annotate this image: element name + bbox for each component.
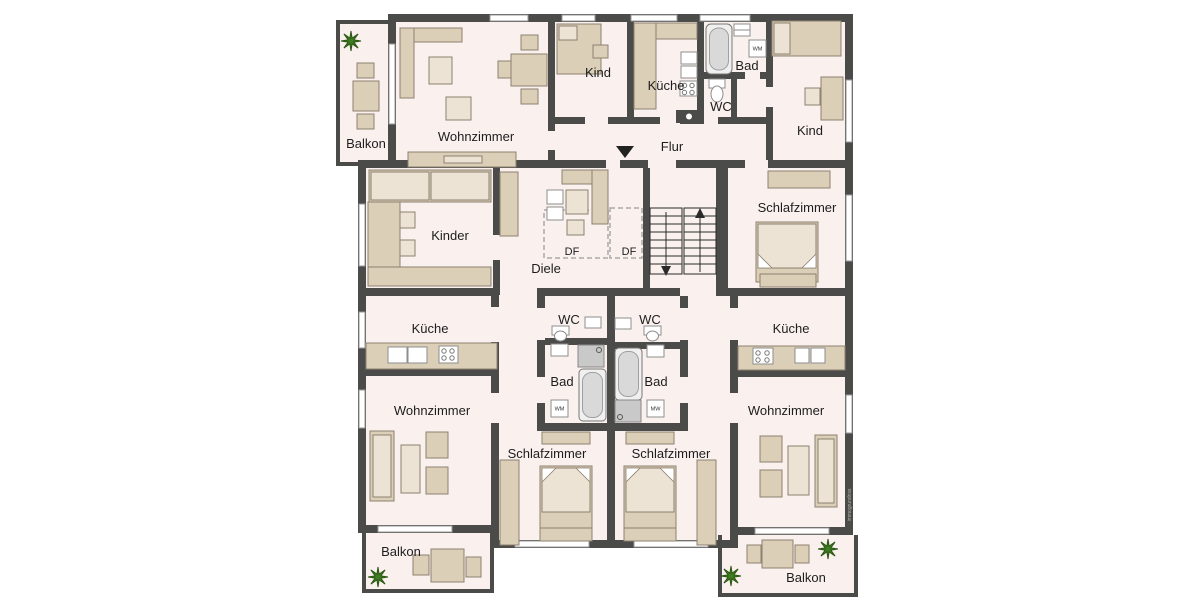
chair: [466, 557, 481, 577]
floors: [338, 16, 854, 593]
chair: [747, 545, 761, 563]
room-label-wohnzimmer-bottom-left: Wohnzimmer: [394, 403, 471, 418]
kitchen-left-set: [366, 343, 497, 369]
window: [846, 195, 852, 261]
sink: [408, 347, 427, 363]
nightstand: [400, 240, 415, 256]
room-label-bad-mid-left: Bad: [550, 374, 573, 389]
floor-plan-page: WM: [0, 0, 1200, 600]
wall: [537, 340, 545, 377]
wall: [731, 79, 737, 124]
wall: [620, 160, 648, 168]
shelf: [542, 432, 590, 444]
wall: [766, 107, 773, 160]
shelf: [626, 432, 674, 444]
wall: [548, 150, 555, 168]
cushion: [429, 57, 452, 84]
table: [431, 549, 464, 582]
plant-icon: [721, 566, 741, 586]
wall: [537, 423, 688, 431]
room-label-flur: Flur: [661, 139, 684, 154]
balcony-wall: [336, 20, 340, 166]
wall: [697, 14, 704, 124]
room-label-kinder: Kinder: [431, 228, 469, 243]
sideboard-detail: [444, 156, 482, 163]
nightstand: [400, 212, 415, 228]
wardrobe: [500, 460, 519, 545]
room-label-balkon-bottom-left: Balkon: [381, 544, 421, 559]
kitchen-right-set: [738, 346, 845, 370]
side-table: [547, 190, 563, 204]
mattress: [758, 224, 816, 268]
wall: [491, 423, 499, 548]
wall: [716, 168, 728, 296]
coffee-table: [446, 97, 471, 120]
bed-bench: [760, 274, 816, 287]
balcony-wall: [490, 533, 494, 593]
bathtub-basin: [619, 352, 639, 397]
sink: [388, 347, 407, 363]
corner-bench: [562, 170, 594, 184]
wall: [718, 117, 773, 124]
wall: [730, 423, 738, 548]
plant-icon: [368, 567, 388, 587]
window: [562, 15, 595, 21]
sofa-cushion: [818, 439, 834, 503]
armchair: [760, 470, 782, 497]
sink: [681, 52, 697, 64]
balcony-wall: [854, 535, 858, 597]
window: [631, 15, 677, 21]
cabinet: [500, 172, 518, 236]
room-label-bad-top: Bad: [735, 58, 758, 73]
coffee-table: [401, 445, 420, 493]
window: [389, 44, 395, 124]
balcony-wall: [362, 589, 494, 593]
bathtub-basin: [710, 28, 729, 70]
wall: [358, 288, 498, 296]
room-label-bad-mid-right: Bad: [644, 374, 667, 389]
window: [755, 528, 829, 534]
balcony-wall: [336, 20, 396, 24]
washing-machine-label: WM: [753, 47, 763, 53]
chair: [805, 88, 820, 105]
wall: [680, 340, 688, 377]
armchair: [760, 436, 782, 462]
room-label-kind-top-right: Kind: [797, 123, 823, 138]
wall: [608, 117, 660, 124]
window: [490, 15, 528, 21]
room-label-kind-top: Kind: [585, 65, 611, 80]
wall: [548, 160, 606, 168]
pillow: [774, 23, 790, 54]
window: [359, 204, 365, 266]
wardrobe: [697, 460, 716, 545]
wall: [730, 340, 738, 393]
toilet-icon: [647, 331, 659, 341]
balcony-wall: [718, 593, 858, 597]
plant-icon: [818, 539, 838, 559]
washbasin: [551, 344, 568, 356]
balcony-wall: [362, 533, 366, 593]
plant-icon: [341, 31, 361, 51]
wall: [537, 288, 680, 296]
washbasin: [615, 318, 631, 329]
pillow: [559, 26, 577, 40]
room-label-schlafzimmer-top-right: Schlafzimmer: [758, 200, 837, 215]
chair: [795, 545, 809, 563]
coffee-table: [788, 446, 809, 495]
room-label-wohnzimmer-bottom-right: Wohnzimmer: [748, 403, 825, 418]
armchair: [426, 467, 448, 494]
side-table: [567, 220, 584, 235]
room-label-kueche-top: Küche: [648, 78, 685, 93]
window: [700, 15, 750, 21]
desk: [821, 77, 843, 120]
room-label-wohnzimmer-top-left: Wohnzimmer: [438, 129, 515, 144]
chair: [521, 89, 538, 104]
mattress: [431, 172, 489, 200]
room-label-schlafzimmer-bottom-left: Schlafzimmer: [508, 446, 587, 461]
wall: [537, 296, 545, 308]
armchair: [426, 432, 448, 458]
room-label-kueche-mid-left: Küche: [412, 321, 449, 336]
stove: [439, 346, 458, 363]
table: [353, 81, 379, 111]
window: [515, 541, 589, 547]
side-table: [547, 207, 563, 220]
wall: [643, 168, 650, 290]
window: [846, 80, 852, 142]
wall: [768, 160, 845, 168]
sofa-cushion: [373, 435, 391, 497]
room-label-wc-mid-left: WC: [558, 312, 580, 327]
room-label-balkon-top-left: Balkon: [346, 136, 386, 151]
sink: [811, 348, 825, 363]
window: [378, 526, 452, 532]
toilet-icon: [555, 331, 567, 341]
dining-table: [511, 54, 547, 86]
washbasin: [647, 345, 664, 357]
sink: [795, 348, 809, 363]
window: [359, 312, 365, 348]
mattress: [371, 172, 429, 200]
room-label-schlafzimmer-bottom-right: Schlafzimmer: [632, 446, 711, 461]
window: [359, 390, 365, 428]
bathtub-basin: [583, 373, 603, 418]
wall: [730, 370, 845, 377]
bed-bench: [624, 528, 676, 541]
skylight-label-df-right: DF: [622, 246, 637, 258]
bed-bench: [540, 528, 592, 541]
wall: [676, 160, 745, 168]
wall: [366, 369, 499, 376]
corner-sofa: [400, 28, 414, 98]
corner-bench: [592, 170, 608, 224]
cushion: [566, 190, 588, 214]
washing-machine-label: WM: [555, 407, 565, 413]
skylight-label-df-left: DF: [565, 246, 580, 258]
wall: [548, 117, 585, 124]
chair: [521, 35, 538, 50]
room-label-wc-top: WC: [710, 99, 732, 114]
chair: [498, 61, 511, 78]
nightstand: [593, 45, 608, 58]
wardrobe: [368, 267, 491, 286]
chair: [357, 63, 374, 78]
wall: [607, 296, 615, 548]
kitchen-counter: [366, 343, 497, 369]
wall: [493, 160, 500, 235]
room-label-balkon-bottom-right: Balkon: [786, 570, 826, 585]
room-label-diele: Diele: [531, 261, 561, 276]
wall: [730, 288, 738, 308]
chair: [357, 114, 374, 129]
kitchen-counter: [634, 23, 656, 109]
washing-machine-label: MW: [651, 407, 662, 413]
washbasin: [585, 317, 601, 328]
balcony-wall: [718, 535, 722, 597]
chimney-flue-icon: [686, 114, 692, 120]
bed: [368, 202, 400, 268]
floor-plan: WM: [0, 0, 1200, 600]
table: [762, 540, 793, 568]
balcony-wall: [336, 162, 392, 166]
sink: [681, 66, 697, 78]
room-label-wc-mid-right: WC: [639, 312, 661, 327]
room-label-kueche-mid-right: Küche: [773, 321, 810, 336]
wall: [548, 14, 555, 131]
wardrobe: [768, 171, 830, 188]
wall: [680, 296, 688, 308]
watermark: immogrundriss: [847, 488, 853, 521]
wall: [627, 14, 634, 124]
wall: [491, 288, 499, 307]
window: [846, 395, 852, 433]
